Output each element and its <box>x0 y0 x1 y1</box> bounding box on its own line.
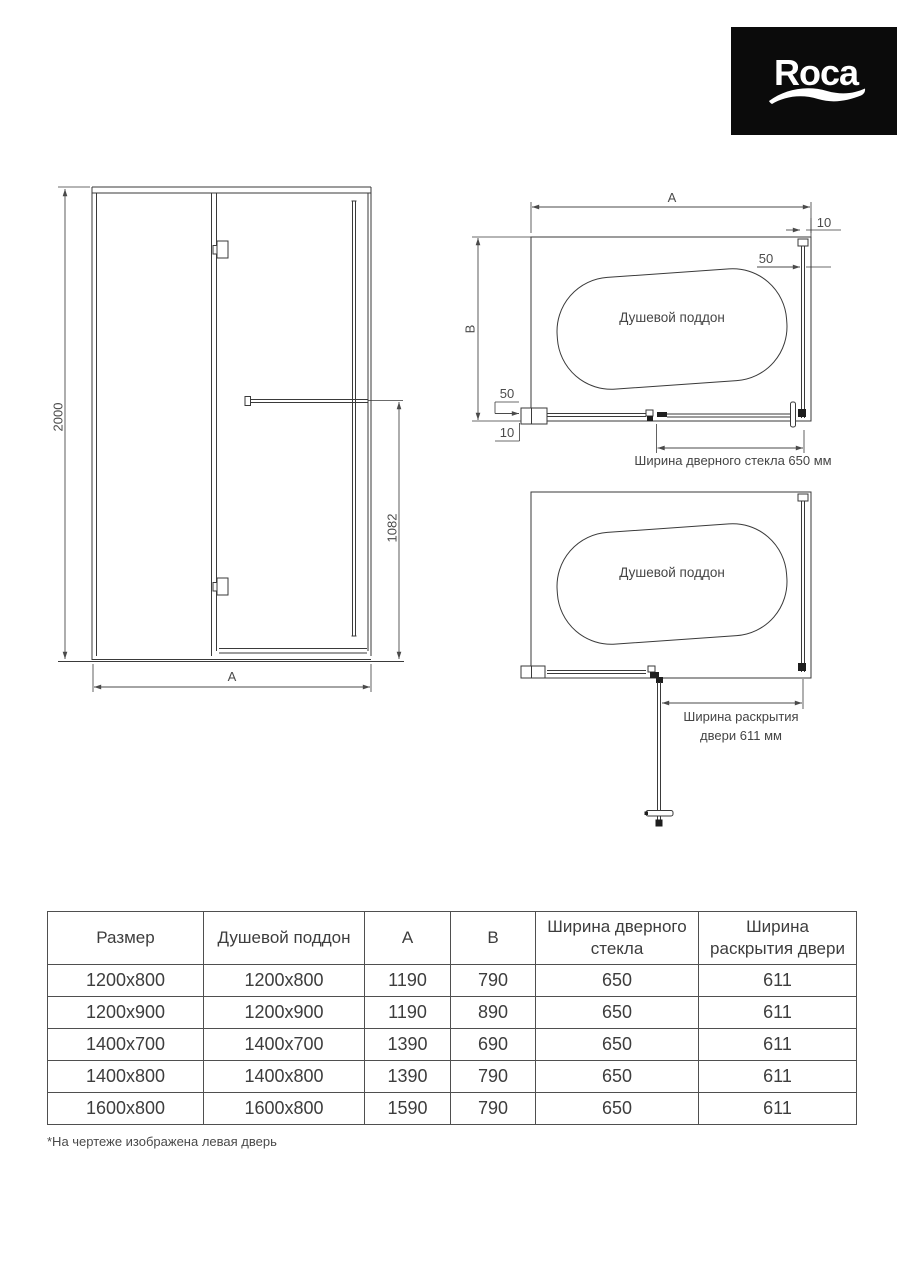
plan-width-label: A <box>668 190 677 205</box>
door-hinge-open <box>648 666 663 683</box>
dimension-handle-1082: 1082 <box>385 402 400 659</box>
table-cell: 1590 <box>365 1093 451 1125</box>
table-cell: 1390 <box>365 1061 451 1093</box>
front-elevation-view: 2000 A 1082 <box>51 187 405 692</box>
shower-tray-label-open: Душевой поддон <box>619 565 725 580</box>
table-cell: 1400x700 <box>48 1029 204 1061</box>
dimension-height-2000: 2000 <box>51 187 91 659</box>
open-door-handle <box>646 811 673 817</box>
table-cell: 1390 <box>365 1029 451 1061</box>
table-cell: 1400x800 <box>204 1061 365 1093</box>
table-cell: 1190 <box>365 965 451 997</box>
wall-gap-top-label: 10 <box>817 215 831 230</box>
dimension-gap-10-top: 10 <box>786 215 841 237</box>
dimension-profile-50-bottom: 50 <box>495 386 519 414</box>
table-cell: 1400x800 <box>48 1061 204 1093</box>
dimension-width-a-front: A <box>93 664 371 692</box>
header-size: Размер <box>48 912 204 965</box>
plan-depth-label: B <box>463 325 478 334</box>
table-cell: 650 <box>536 997 699 1029</box>
table-cell: 790 <box>451 1093 536 1125</box>
table-cell: 1600x800 <box>204 1093 365 1125</box>
wall-profile-bottom-left <box>521 408 547 424</box>
dimension-plan-a: A <box>531 190 811 233</box>
front-height-label: 2000 <box>51 403 66 432</box>
plan-view-top: A B 10 50 Душевой поддон <box>463 190 842 468</box>
table-cell: 690 <box>451 1029 536 1061</box>
table-cell: 611 <box>699 1093 857 1125</box>
table-cell: 611 <box>699 1061 857 1093</box>
table-cell: 611 <box>699 997 857 1029</box>
header-tray: Душевой поддон <box>204 912 365 965</box>
open-door-leaf <box>645 682 674 827</box>
footnote: *На чертеже изображена левая дверь <box>47 1134 277 1149</box>
table-cell: 650 <box>536 1029 699 1061</box>
header-opening-width: Ширина раскрытия двери <box>699 912 857 965</box>
dimension-glass-width: Ширина дверного стекла 650 мм <box>634 424 831 468</box>
table-cell: 1600x800 <box>48 1093 204 1125</box>
handle-height-label: 1082 <box>385 514 400 543</box>
size-table: Размер Душевой поддон A B Ширина дверног… <box>47 911 857 1125</box>
wall-profile-bottom-left-open <box>521 666 545 678</box>
size-table-container: Размер Душевой поддон A B Ширина дверног… <box>47 911 857 1125</box>
table-cell: 611 <box>699 965 857 997</box>
table-row: 1200x800 1200x800 1190 790 650 611 <box>48 965 857 997</box>
table-cell: 1200x900 <box>48 997 204 1029</box>
door-opening-note-line2: двери 611 мм <box>700 728 782 743</box>
door-handle-plan <box>791 402 796 427</box>
shower-tray-outline-open <box>553 520 790 648</box>
towel-bar <box>245 397 403 406</box>
profile-bottom-label: 50 <box>500 386 514 401</box>
table-cell: 650 <box>536 1061 699 1093</box>
profile-right-label: 50 <box>759 251 773 266</box>
door-hinge-plan <box>646 410 667 421</box>
table-row: 1600x800 1600x800 1590 790 650 611 <box>48 1093 857 1125</box>
table-cell: 611 <box>699 1029 857 1061</box>
header-a: A <box>365 912 451 965</box>
header-b: B <box>451 912 536 965</box>
dimension-door-opening: Ширина раскрытия двери 611 мм <box>662 679 803 743</box>
table-cell: 790 <box>451 965 536 997</box>
table-cell: 650 <box>536 1093 699 1125</box>
wall-gap-bottom-label: 10 <box>500 425 514 440</box>
side-glass-panel <box>798 239 808 418</box>
table-row: 1400x800 1400x800 1390 790 650 611 <box>48 1061 857 1093</box>
hinge-bottom <box>213 578 228 595</box>
door-opening-note-line1: Ширина раскрытия <box>683 709 798 724</box>
table-cell: 1190 <box>365 997 451 1029</box>
table-cell: 790 <box>451 1061 536 1093</box>
hinge-top <box>213 241 228 258</box>
table-cell: 1400x700 <box>204 1029 365 1061</box>
glass-width-note: Ширина дверного стекла 650 мм <box>634 453 831 468</box>
table-cell: 650 <box>536 965 699 997</box>
technical-drawing: 2000 A 1082 A B <box>0 0 900 900</box>
header-glass-width: Ширина дверного стекла <box>536 912 699 965</box>
spec-sheet-page: { "brand": { "logo_text": "Roca" }, "col… <box>0 0 900 1273</box>
table-row: 1200x900 1200x900 1190 890 650 611 <box>48 997 857 1029</box>
front-width-label: A <box>228 669 237 684</box>
door-handle-bar <box>352 201 357 636</box>
table-header-row: Размер Душевой поддон A B Ширина дверног… <box>48 912 857 965</box>
table-cell: 1200x800 <box>48 965 204 997</box>
shower-tray-label: Душевой поддон <box>619 310 725 325</box>
side-glass-panel-open <box>798 494 808 672</box>
shower-tray-outline <box>553 265 790 393</box>
dimension-gap-10-bottom: 10 <box>495 423 520 441</box>
table-cell: 890 <box>451 997 536 1029</box>
table-cell: 1200x800 <box>204 965 365 997</box>
dimension-profile-50-right: 50 <box>757 251 831 267</box>
table-row: 1400x700 1400x700 1390 690 650 611 <box>48 1029 857 1061</box>
dimension-plan-b: B <box>463 238 479 420</box>
table-cell: 1200x900 <box>204 997 365 1029</box>
plan-view-open: Душевой поддон Ширина раскрытия двери 6 <box>521 492 811 827</box>
